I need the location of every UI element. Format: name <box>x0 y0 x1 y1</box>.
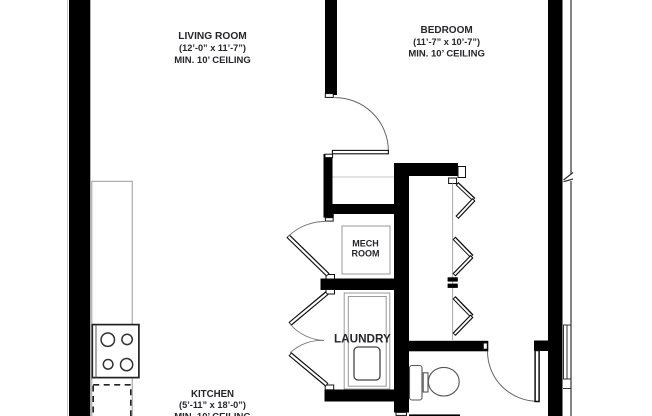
svg-text:BEDROOM: BEDROOM <box>420 25 472 36</box>
svg-text:LAUNDRY: LAUNDRY <box>334 333 391 346</box>
svg-text:MIN. 10’ CEILING: MIN. 10’ CEILING <box>174 411 251 416</box>
svg-text:ROOM: ROOM <box>352 249 380 259</box>
svg-text:MIN. 10’ CEILING: MIN. 10’ CEILING <box>408 49 485 60</box>
svg-text:LIVING ROOM: LIVING ROOM <box>178 31 246 42</box>
svg-text:(5’-11” x 18’-0”): (5’-11” x 18’-0”) <box>179 400 246 410</box>
svg-text:(12’-0” x 11’-7”): (12’-0” x 11’-7”) <box>179 43 246 53</box>
svg-text:(11’-7” x 10’-7”): (11’-7” x 10’-7”) <box>413 37 480 47</box>
svg-text:KITCHEN: KITCHEN <box>191 389 234 400</box>
svg-text:MECH: MECH <box>352 239 379 249</box>
svg-text:MIN. 10’ CEILING: MIN. 10’ CEILING <box>174 55 251 66</box>
